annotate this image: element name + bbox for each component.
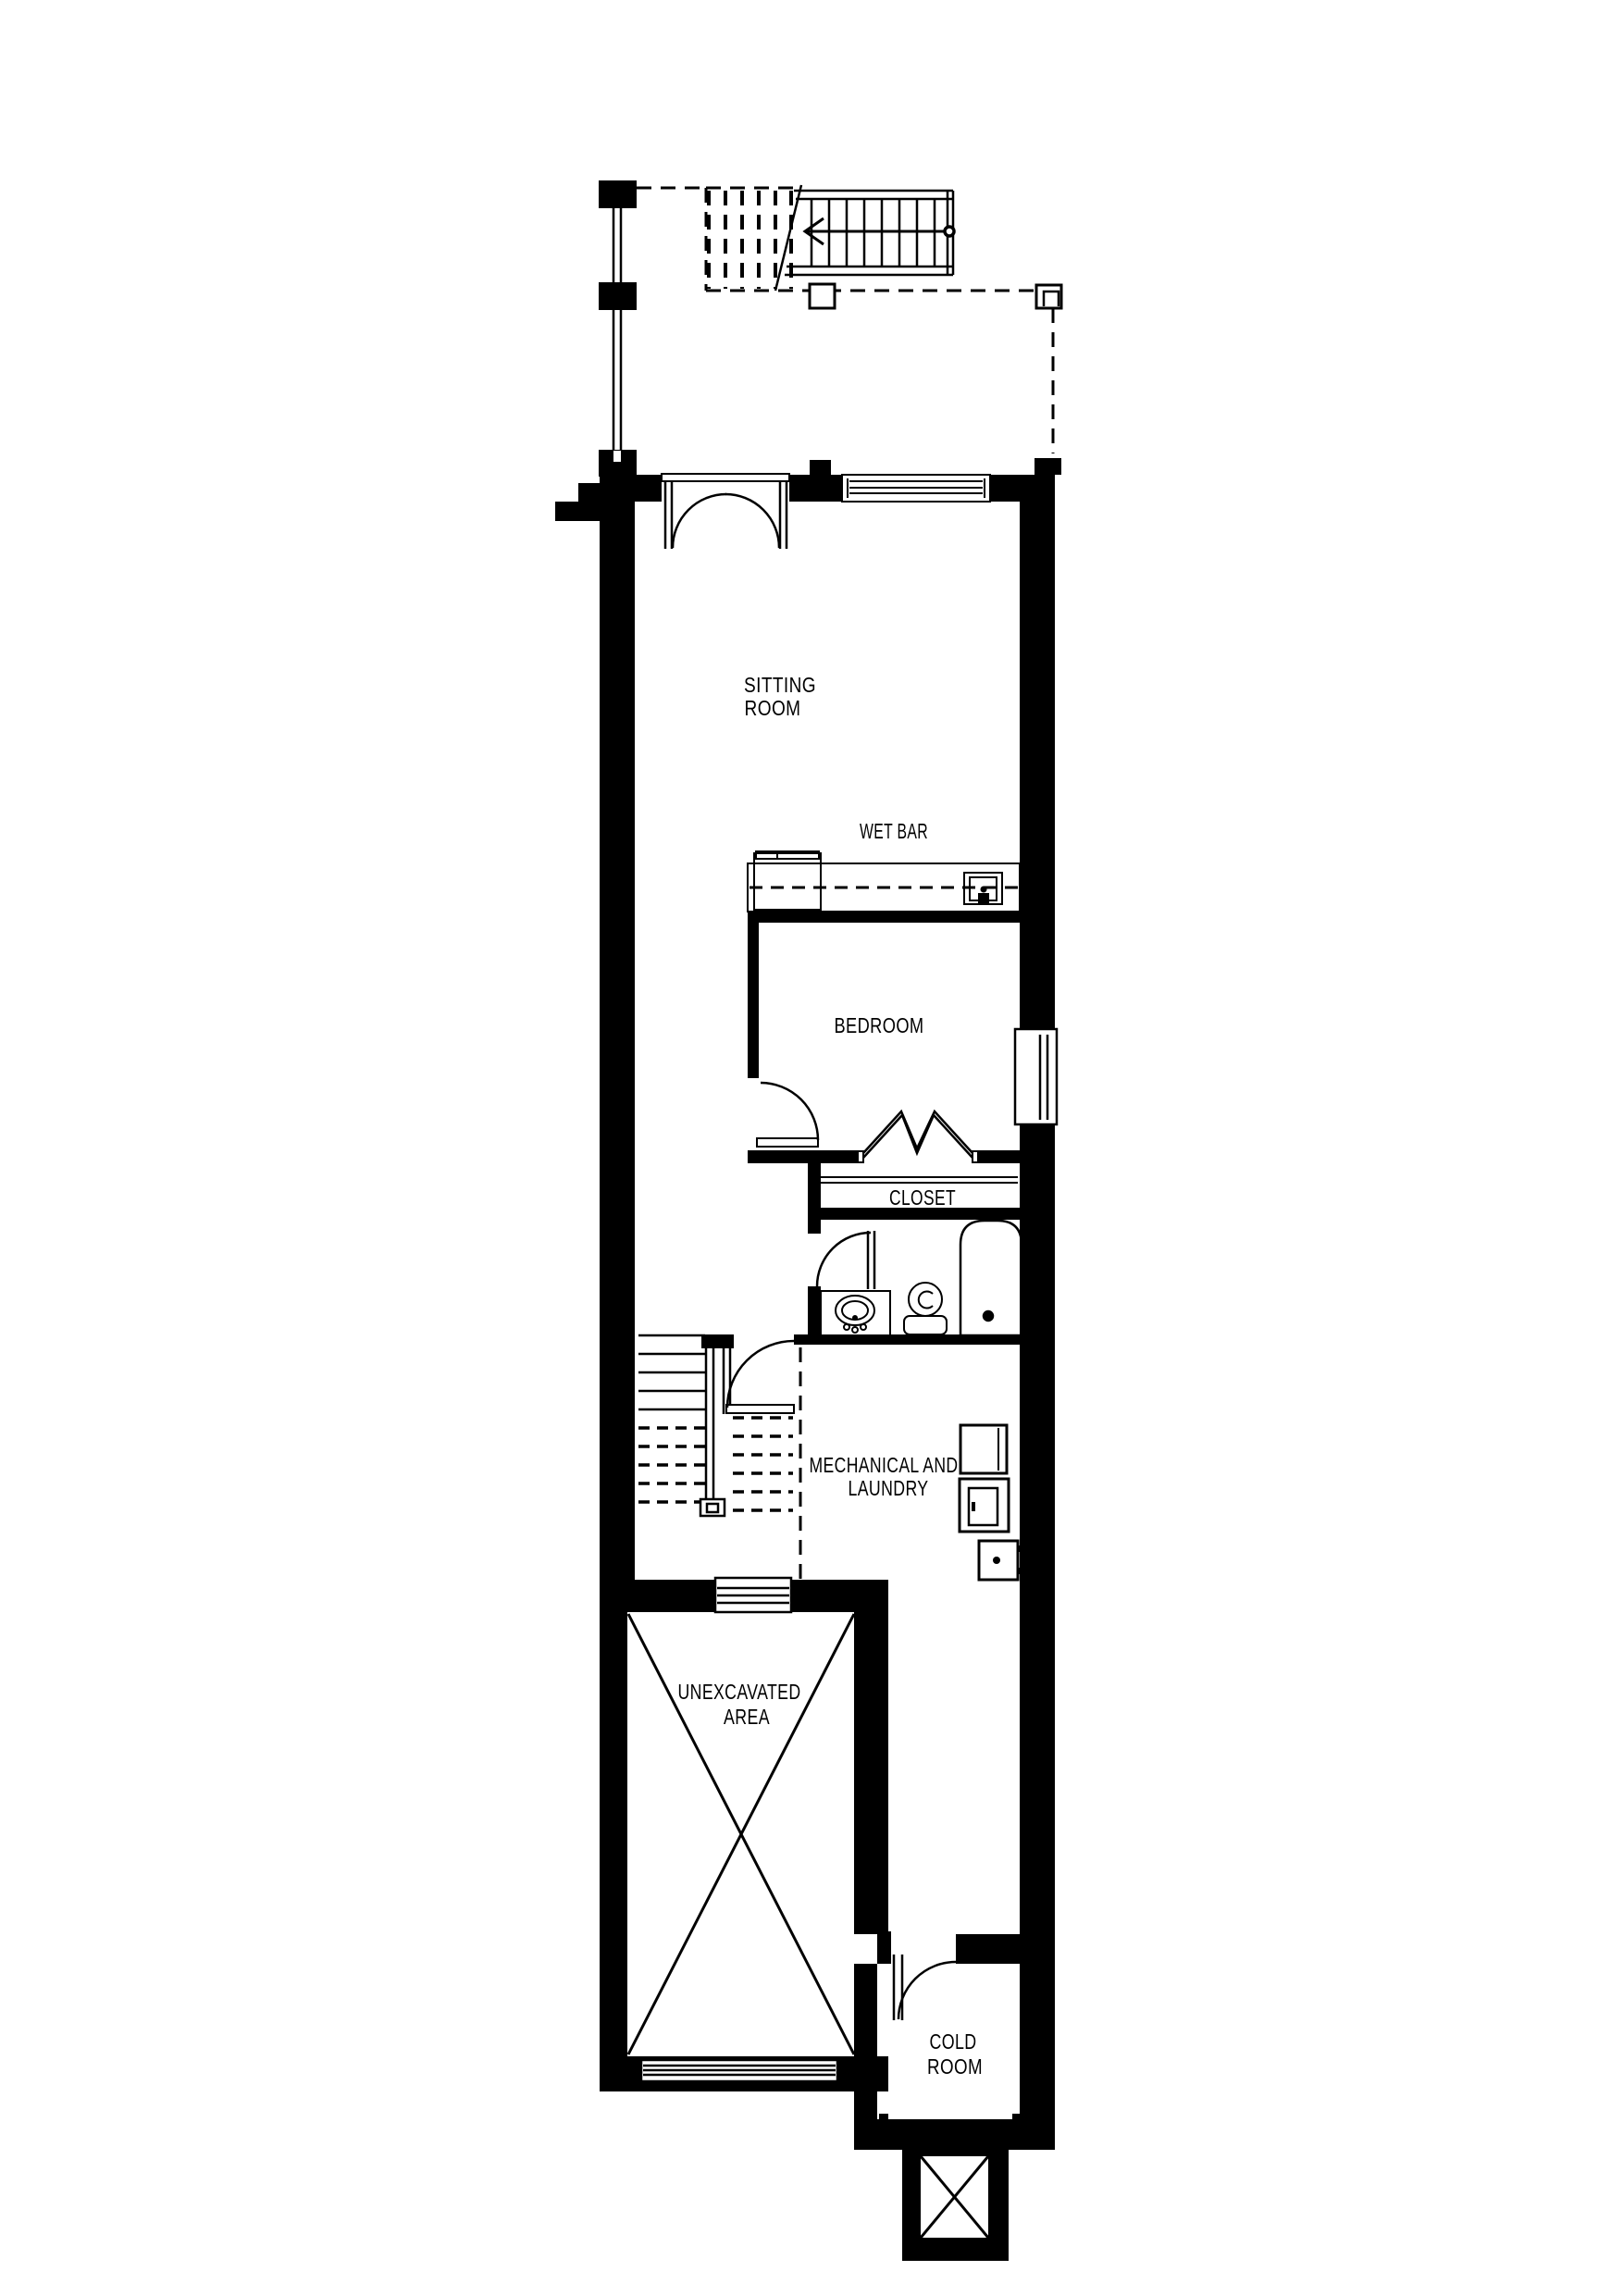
foundation-vent [641,2060,837,2081]
stair-direction-arrow [805,218,954,244]
water-heater [960,1425,1007,1473]
mechanical-laundry-label: LAUNDRY [849,1476,929,1500]
cold-room-label: ROOM [927,2054,983,2079]
mechanical-equipment [960,1425,1025,1580]
bathtub-icon [960,1221,1022,1335]
floor-plan-canvas: SITTING ROOM WET BAR BEDROOM CLOSET MECH… [0,0,1623,2296]
basement-stairs [638,1335,800,1579]
stair-stringer [706,1335,730,1500]
newel-post [700,1499,725,1516]
mechanical-laundry-label: MECHANICAL AND [810,1453,959,1477]
furnace [960,1479,1009,1532]
closet [821,1111,1018,1183]
above-outline-dashed [637,188,1053,453]
cold-room-label: COLD [930,2029,977,2054]
crawlspace-steps [715,1578,791,1612]
beam-lines [613,208,621,451]
closet-shelf-lines [821,1177,1018,1183]
entry-double-door [662,474,789,549]
unexcavated-area-label: UNEXCAVATED [678,1680,801,1704]
sitting-room-label: ROOM [745,696,801,720]
toilet-icon [904,1283,947,1334]
post-slot [613,451,621,462]
deck-post [599,180,637,477]
closet-label: CLOSET [889,1185,956,1210]
bifold-closet-door [858,1111,978,1162]
bedroom-window [1015,1029,1057,1124]
bedroom-label: BEDROOM [835,1013,924,1037]
wet-bar-counter [748,851,1020,912]
column-square [810,284,835,308]
bathroom [817,1221,1022,1335]
bathroom-door [817,1231,874,1289]
cold-room-door [894,1955,956,2020]
sitting-room-window [842,475,990,502]
bathroom-sink-icon [821,1291,890,1335]
unexcavated-area-label: AREA [724,1705,770,1729]
electrical-panel [979,1541,1025,1580]
upper-floor-overlay [599,180,1061,477]
wet-bar-label: WET BAR [860,819,928,843]
mechanical-door [726,1341,794,1413]
elevator-shaft [902,2148,1009,2261]
column-square-corner [1036,285,1061,308]
bar-sink-icon [964,873,1002,904]
sitting-room-label: SITTING [744,673,816,697]
bedroom-door [757,1083,818,1147]
